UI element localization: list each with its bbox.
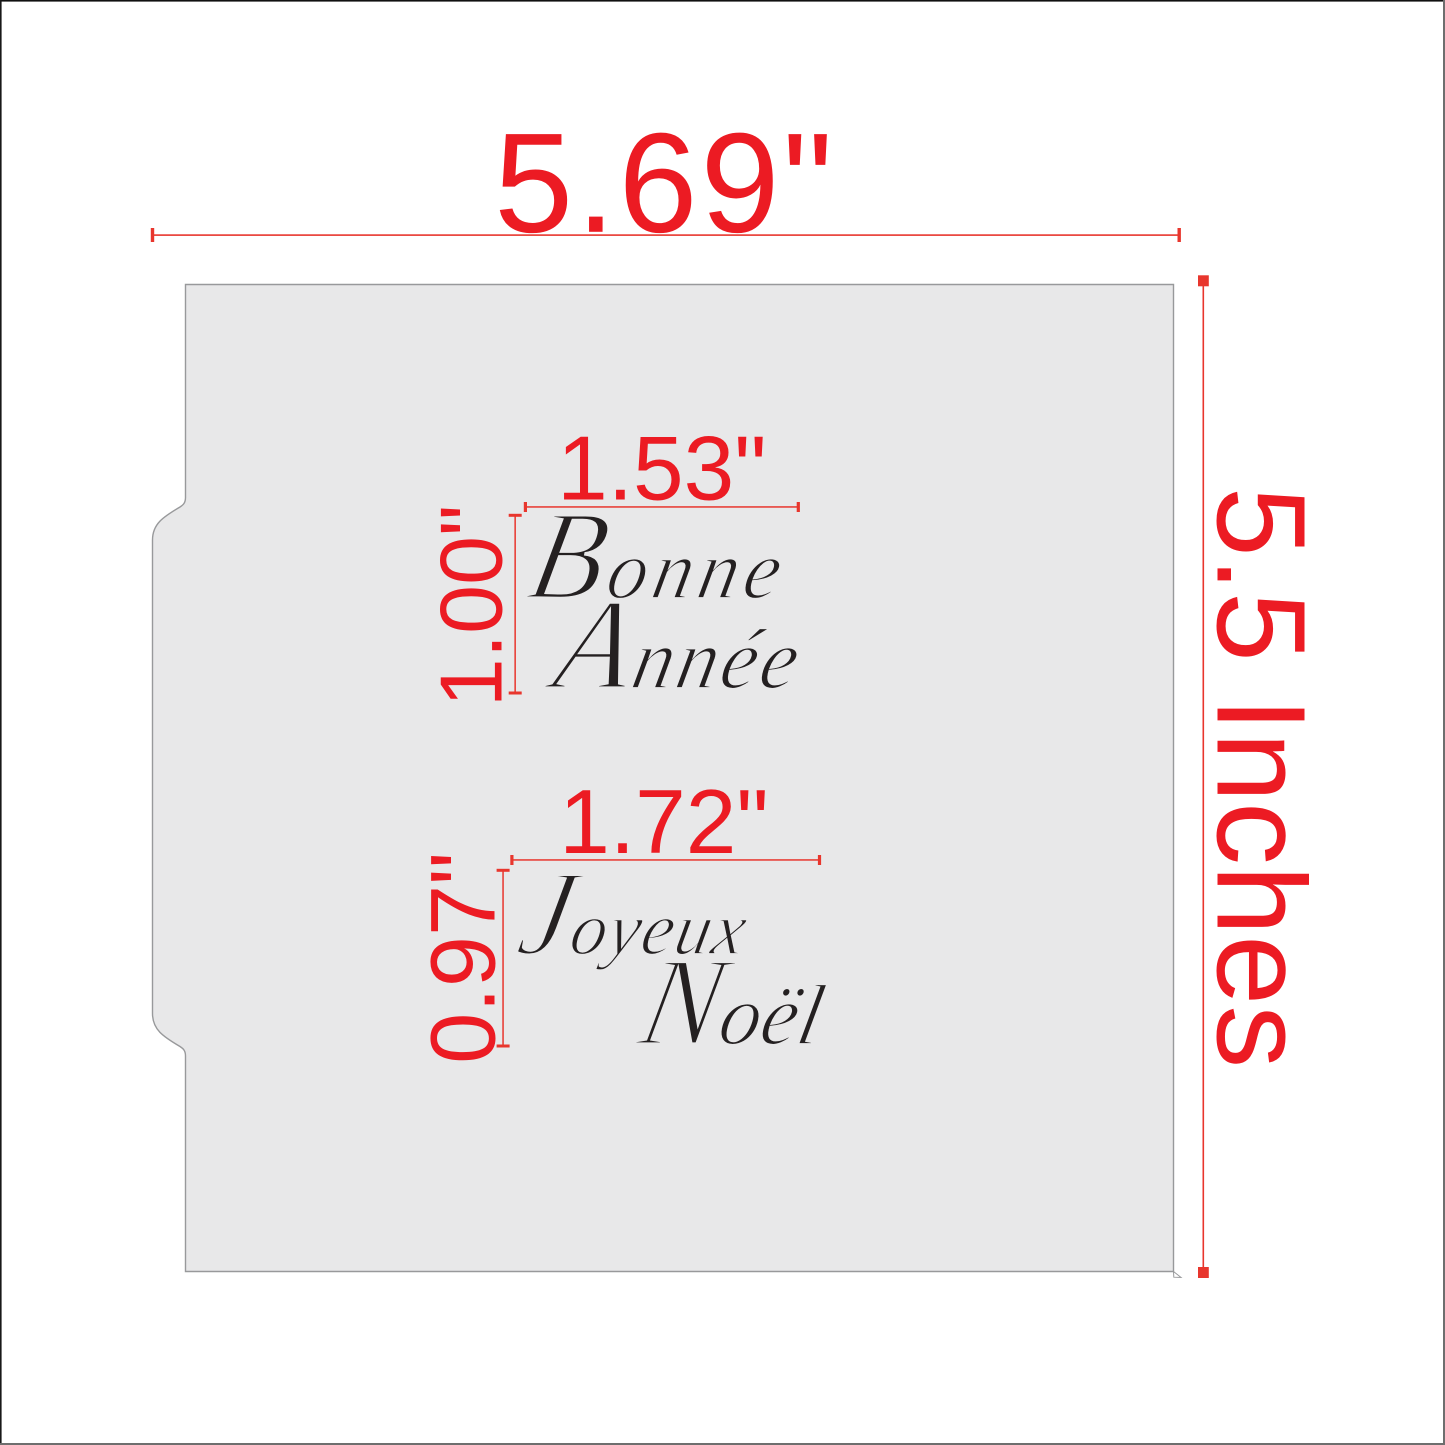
svg-text:5.69": 5.69" (494, 104, 836, 263)
svg-text:0.97": 0.97" (413, 852, 515, 1064)
svg-text:1.72": 1.72" (559, 772, 768, 873)
svg-text:5.5 Inches: 5.5 Inches (1190, 487, 1331, 1068)
svg-text:1.00": 1.00" (421, 505, 520, 708)
